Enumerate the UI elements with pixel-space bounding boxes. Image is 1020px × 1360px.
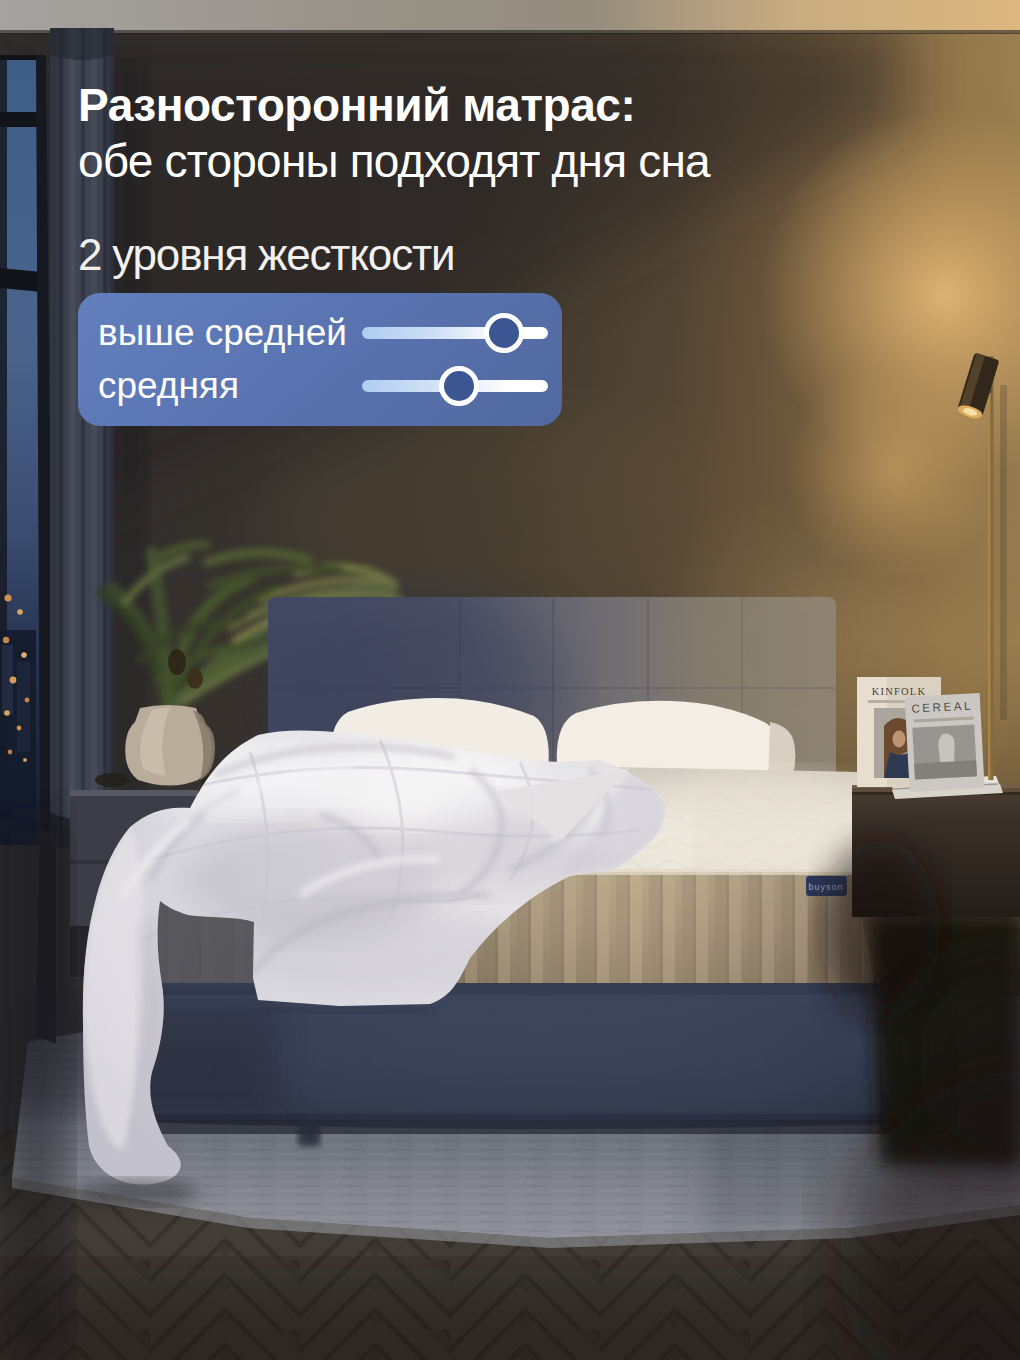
svg-text:KINFOLK: KINFOLK (872, 686, 926, 697)
